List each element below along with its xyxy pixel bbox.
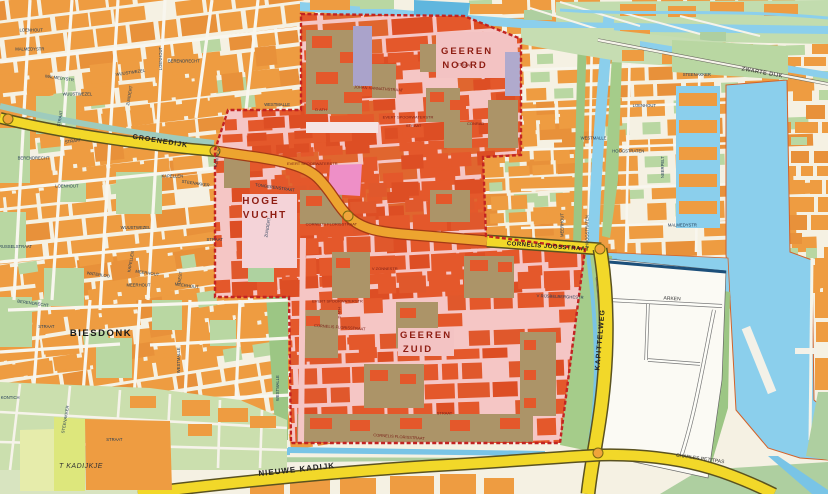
svg-text:V ZONNESTR: V ZONNESTR — [372, 266, 398, 271]
svg-text:WESTMALLE: WESTMALLE — [275, 375, 280, 401]
svg-text:ZUID: ZUID — [403, 344, 433, 355]
svg-text:WESTMALLE: WESTMALLE — [264, 102, 290, 107]
svg-text:BERENDRECHT: BERENDRECHT — [168, 58, 200, 63]
svg-text:CONRAD: CONRAD — [467, 121, 484, 126]
svg-text:STRAAT: STRAAT — [406, 123, 422, 128]
svg-text:HOOGSTRATEN: HOOGSTRATEN — [584, 215, 589, 247]
svg-text:EVERT SPOORWATERSTR: EVERT SPOORWATERSTR — [287, 161, 338, 166]
svg-text:EVERT SPOORWATERSTR: EVERT SPOORWATERSTR — [312, 299, 363, 304]
svg-text:GEEREN: GEEREN — [400, 330, 452, 341]
svg-text:MEERHOUT: MEERHOUT — [126, 282, 150, 287]
svg-text:STRAAT: STRAAT — [38, 324, 55, 329]
svg-text:EVERT SPOORWATERSTR: EVERT SPOORWATERSTR — [383, 115, 434, 120]
svg-text:HOOGSTRATEN: HOOGSTRATEN — [612, 148, 644, 153]
svg-text:KAPELLEN: KAPELLEN — [162, 173, 184, 178]
svg-text:MALMEDYSTR: MALMEDYSTR — [668, 222, 697, 227]
svg-text:KONTICH: KONTICH — [1, 395, 20, 400]
svg-text:MALMEDYSTR: MALMEDYSTR — [15, 47, 44, 52]
svg-text:LOENHOUT: LOENHOUT — [158, 46, 163, 70]
svg-text:WESTMALLE: WESTMALLE — [581, 135, 607, 140]
svg-text:CORNELIS FLORISSTRAAT: CORNELIS FLORISSTRAAT — [306, 221, 358, 226]
svg-text:STEENAKKER: STEENAKKER — [683, 72, 711, 77]
svg-text:LOENHOUT: LOENHOUT — [633, 103, 657, 108]
svg-text:BERENDRECHT: BERENDRECHT — [18, 156, 50, 161]
svg-text:STRAAT: STRAAT — [207, 237, 224, 242]
svg-text:WUUSTWEZEL: WUUSTWEZEL — [121, 225, 151, 230]
svg-text:D ATH: D ATH — [315, 107, 327, 112]
svg-text:VUCHT: VUCHT — [243, 210, 287, 221]
svg-text:LOENHOUT: LOENHOUT — [20, 27, 44, 32]
svg-text:GEEREN: GEEREN — [441, 46, 493, 57]
svg-text:STRAAT: STRAAT — [437, 411, 453, 416]
svg-text:HOGE: HOGE — [242, 196, 279, 207]
svg-text:ARKEN: ARKEN — [663, 296, 681, 303]
svg-text:D ATH: D ATH — [336, 307, 341, 319]
svg-text:NEERPELT: NEERPELT — [660, 156, 665, 178]
svg-text:BIESDONK: BIESDONK — [70, 328, 132, 339]
svg-text:LOENHOUT: LOENHOUT — [55, 183, 79, 188]
svg-text:MEERHOUT: MEERHOUT — [560, 213, 565, 237]
svg-text:STRAAT: STRAAT — [106, 437, 123, 442]
svg-text:BRUSSELSTRAAT: BRUSSELSTRAAT — [0, 244, 32, 249]
svg-text:WESTMALLE: WESTMALLE — [176, 347, 181, 373]
svg-text:WUUSTWEZEL: WUUSTWEZEL — [62, 91, 92, 96]
svg-text:T KADIJKJE: T KADIJKJE — [59, 463, 103, 470]
